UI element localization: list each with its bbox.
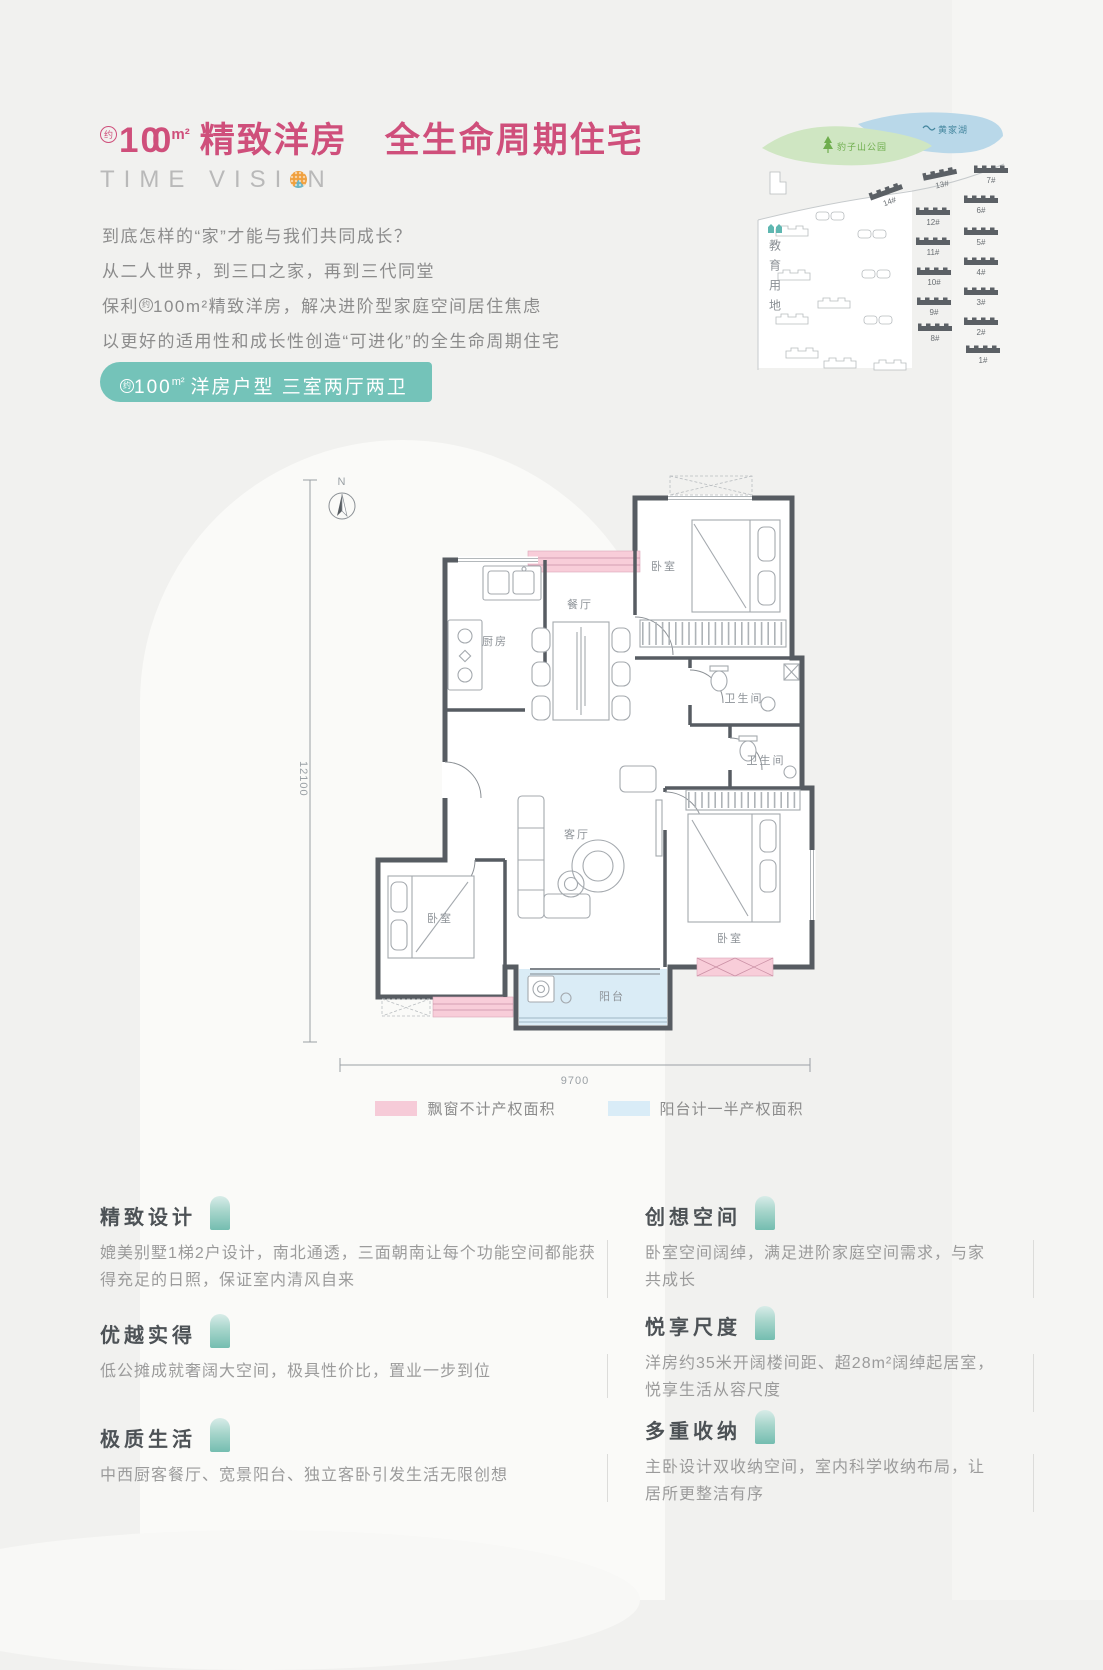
feature-life: 极质生活 中西厨客餐厅、宽景阳台、独立客卧引发生活无限创想 bbox=[100, 1418, 605, 1489]
unit-type-badge: 约100m²洋房户型 三室两厅两卫 bbox=[100, 362, 432, 402]
svg-text:2#: 2# bbox=[977, 328, 986, 337]
feature-body: 卧室空间阔绰，满足进阶家庭空间需求，与家共成长 bbox=[645, 1240, 995, 1294]
feature-storage: 多重收纳 主卧设计双收纳空间，室内科学收纳布局，让居所更整洁有序 bbox=[645, 1410, 995, 1508]
title-area: 1 bbox=[119, 121, 140, 160]
feature-value: 优越实得 低公摊成就奢阔大空间，极具性价比，置业一步到位 bbox=[100, 1314, 605, 1385]
feature-body: 媲美别墅1梯2户设计，南北通透，三面朝南让每个功能空间都能获得充足的日照，保证室… bbox=[100, 1240, 605, 1294]
svg-text:8#: 8# bbox=[931, 334, 940, 343]
svg-text:1#: 1# bbox=[979, 356, 988, 365]
svg-text:3#: 3# bbox=[977, 298, 986, 307]
logo-o-icon bbox=[290, 171, 307, 188]
arch-icon bbox=[210, 1418, 230, 1452]
balcony-label: 阳台 bbox=[599, 989, 625, 1003]
plan-legend: 飘窗不计产权面积 阳台计一半产权面积 bbox=[38, 1098, 1103, 1119]
kitchen-label: 厨房 bbox=[482, 635, 508, 648]
dining-label: 餐厅 bbox=[567, 597, 593, 611]
intro-line: 以更好的适用性和成长性创造“可进化”的全生命周期住宅 bbox=[102, 325, 560, 360]
svg-text:4#: 4# bbox=[977, 268, 986, 277]
intro-line: 从二人世界，到三口之家，再到三代同堂 bbox=[102, 255, 560, 290]
school-icon bbox=[767, 222, 783, 234]
feature-title: 悦享尺度 bbox=[645, 1311, 741, 1340]
bay-swatch bbox=[375, 1101, 417, 1116]
north-compass-icon: N bbox=[329, 476, 355, 519]
education-land: 教育用地 bbox=[741, 222, 809, 319]
svg-text:12#: 12# bbox=[926, 218, 940, 227]
feature-scale: 悦享尺度 洋房约35米开阔楼间距、超28m²阔绰起居室，悦享生活从容尺度 bbox=[645, 1306, 995, 1404]
badge-area: 100 bbox=[134, 377, 172, 398]
divider bbox=[607, 1240, 608, 1298]
legend-item-bay: 飘窗不计产权面积 bbox=[375, 1098, 555, 1119]
logo-text-end: N bbox=[307, 166, 333, 193]
svg-text:9#: 9# bbox=[930, 308, 939, 317]
svg-text:11#: 11# bbox=[927, 248, 940, 257]
divider bbox=[1033, 1240, 1034, 1298]
intro-line: 到底怎样的“家”才能与我们共同成长？ bbox=[102, 220, 560, 255]
intro-paragraph: 到底怎样的“家”才能与我们共同成长？ 从二人世界，到三口之家，再到三代同堂 保利… bbox=[102, 220, 560, 359]
svg-text:6#: 6# bbox=[977, 206, 986, 215]
park-label: 豹子山公园 bbox=[837, 141, 887, 152]
title-zeros: 00 bbox=[140, 121, 163, 160]
feature-body: 低公摊成就奢阔大空间，极具性价比，置业一步到位 bbox=[100, 1358, 605, 1385]
arch-icon bbox=[755, 1306, 775, 1340]
brand-logo: TIME VISIN bbox=[100, 166, 334, 194]
intro-line: 保利约100m²精致洋房，解决进阶型家庭空间居住焦虑 bbox=[102, 290, 560, 325]
svg-text:13#: 13# bbox=[935, 179, 950, 191]
feature-title: 多重收纳 bbox=[645, 1415, 741, 1444]
logo-text: TIME VISI bbox=[100, 166, 290, 193]
feature-body: 主卧设计双收纳空间，室内科学收纳布局，让居所更整洁有序 bbox=[645, 1454, 995, 1508]
bedroom-label: 卧室 bbox=[717, 931, 743, 945]
divider bbox=[1033, 1454, 1034, 1512]
badge-text: 洋房户型 三室两厅两卫 bbox=[191, 377, 408, 398]
arch-icon bbox=[755, 1196, 775, 1230]
svg-text:10#: 10# bbox=[927, 278, 941, 287]
arch-icon bbox=[210, 1314, 230, 1348]
lake-label: 黄家湖 bbox=[938, 124, 968, 135]
title-unit: m² bbox=[171, 126, 189, 143]
feature-body: 中西厨客餐厅、宽景阳台、独立客卧引发生活无限创想 bbox=[100, 1462, 605, 1489]
feature-title: 创想空间 bbox=[645, 1201, 741, 1230]
dim-left-label: 12100 bbox=[297, 761, 309, 797]
approx-mark: 约 bbox=[120, 379, 134, 393]
svg-text:7#: 7# bbox=[987, 176, 996, 185]
approx-mark: 约 bbox=[100, 126, 117, 143]
svg-text:N: N bbox=[338, 476, 347, 488]
approx-mark: 约 bbox=[139, 298, 153, 312]
dim-bottom-label: 9700 bbox=[561, 1075, 589, 1087]
feature-title: 极质生活 bbox=[100, 1423, 196, 1452]
feature-title: 优越实得 bbox=[100, 1319, 196, 1348]
divider bbox=[1033, 1354, 1034, 1412]
bath-label: 卫生间 bbox=[725, 691, 764, 705]
badge-unit: m² bbox=[172, 376, 185, 388]
floor-plan: 12100 9700 N bbox=[290, 470, 830, 1090]
svg-text:5#: 5# bbox=[977, 238, 986, 247]
legend-label: 阳台计一半产权面积 bbox=[660, 1098, 804, 1119]
legend-label: 飘窗不计产权面积 bbox=[427, 1098, 555, 1119]
title-text: 精致洋房 全生命周期住宅 bbox=[200, 121, 644, 160]
legend-item-balcony: 阳台计一半产权面积 bbox=[608, 1098, 804, 1119]
feature-body: 洋房约35米开阔楼间距、超28m²阔绰起居室，悦享生活从容尺度 bbox=[645, 1350, 995, 1404]
feature-space: 创想空间 卧室空间阔绰，满足进阶家庭空间需求，与家共成长 bbox=[645, 1196, 995, 1294]
balcony-swatch bbox=[608, 1101, 650, 1116]
feature-title: 精致设计 bbox=[100, 1201, 196, 1230]
bedroom-label: 卧室 bbox=[651, 559, 677, 573]
bedroom-label: 卧室 bbox=[427, 911, 453, 925]
living-label: 客厅 bbox=[564, 827, 590, 841]
divider bbox=[607, 1354, 608, 1398]
arch-icon bbox=[210, 1196, 230, 1230]
page-title: 约100m²精致洋房 全生命周期住宅 bbox=[100, 112, 644, 163]
divider bbox=[607, 1454, 608, 1502]
arch-icon bbox=[755, 1410, 775, 1444]
bath-label: 卫生间 bbox=[747, 753, 786, 767]
feature-design: 精致设计 媲美别墅1梯2户设计，南北通透，三面朝南让每个功能空间都能获得充足的日… bbox=[100, 1196, 605, 1294]
education-land-label: 教育用地 bbox=[767, 239, 784, 319]
